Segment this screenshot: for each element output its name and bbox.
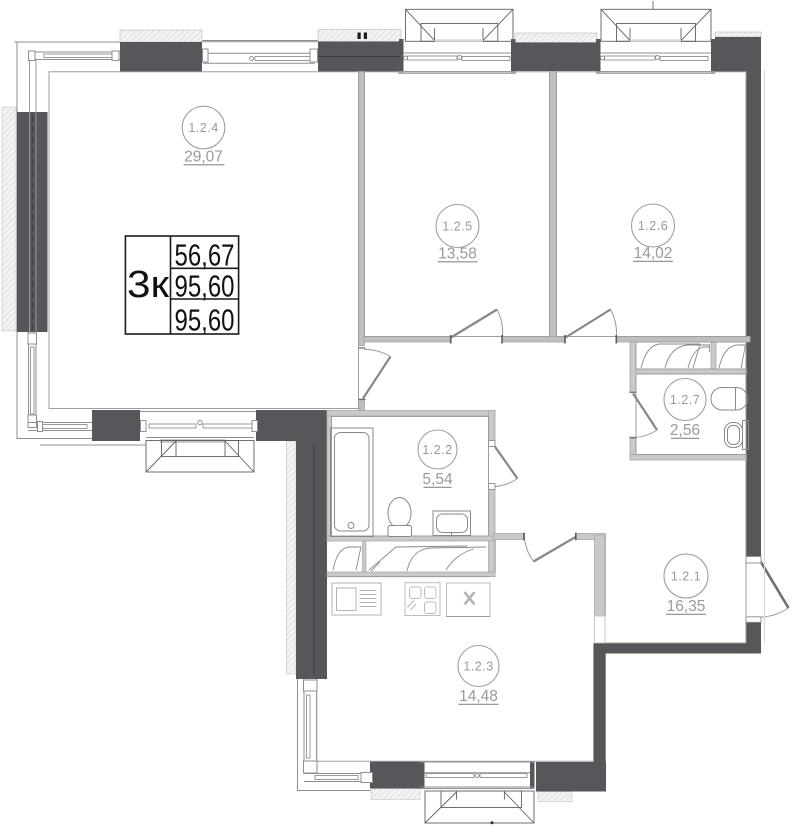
svg-text:1.2.6: 1.2.6	[638, 219, 668, 233]
svg-text:1.2.1: 1.2.1	[671, 570, 701, 584]
svg-text:1.2.3: 1.2.3	[463, 660, 493, 674]
svg-text:14,02: 14,02	[634, 245, 673, 262]
svg-text:14,48: 14,48	[459, 688, 498, 705]
svg-text:95,60: 95,60	[175, 303, 235, 338]
svg-text:3к: 3к	[127, 264, 169, 306]
svg-text:95,60: 95,60	[175, 269, 235, 304]
svg-text:1.2.2: 1.2.2	[422, 443, 452, 457]
svg-text:1.2.5: 1.2.5	[442, 220, 472, 234]
svg-text:2,56: 2,56	[670, 422, 700, 439]
svg-text:56,67: 56,67	[175, 238, 235, 273]
svg-text:1.2.4: 1.2.4	[188, 121, 218, 135]
svg-text:13,58: 13,58	[438, 246, 477, 263]
svg-text:1.2.7: 1.2.7	[670, 393, 700, 407]
svg-text:16,35: 16,35	[667, 598, 706, 615]
svg-text:5,54: 5,54	[422, 471, 453, 488]
svg-text:29,07: 29,07	[184, 149, 223, 166]
